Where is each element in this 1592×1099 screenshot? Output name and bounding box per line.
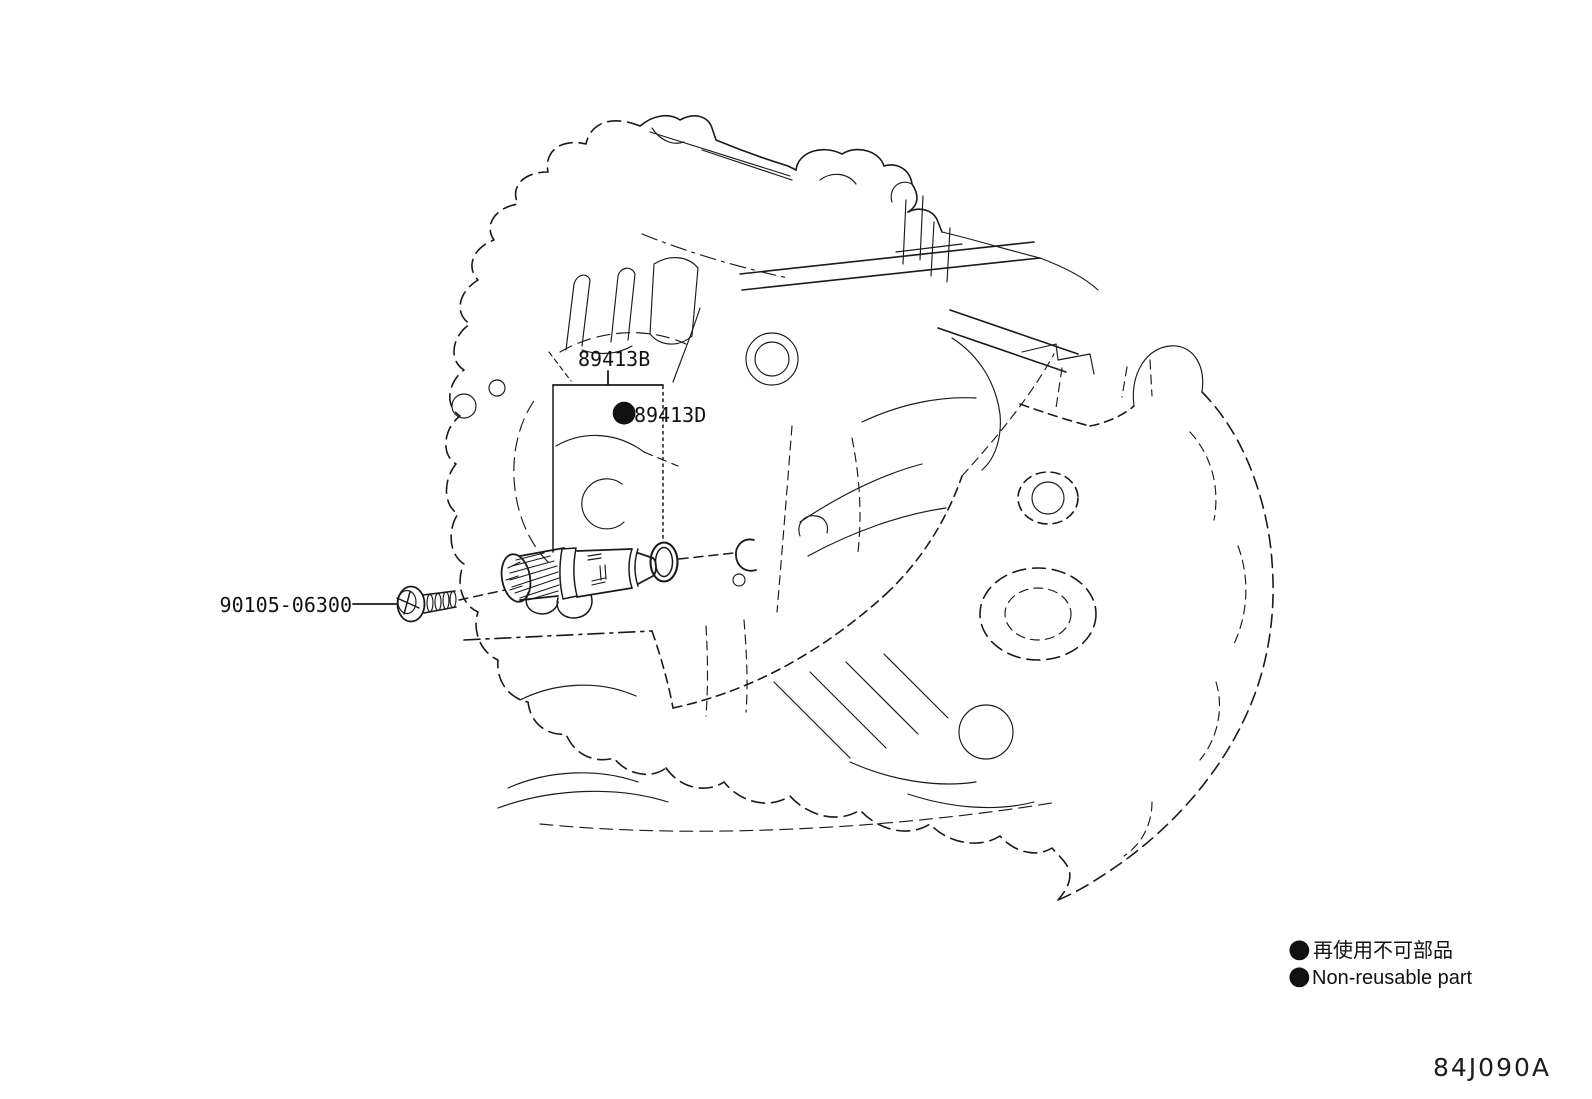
part-label-89413D: 89413D (634, 403, 706, 427)
o-ring-leader-dashed (679, 553, 734, 559)
legend-text-japanese: 再使用不可部品 (1313, 938, 1453, 962)
transmission-housing-outline (446, 116, 1273, 900)
shift-bracket-drawing (642, 132, 1127, 408)
part-label-90105-06300: 90105-06300 (220, 593, 352, 617)
parts-diagram-page: 89413B ● 89413D 90105-06300 ● 再使用不可部品 ● … (0, 0, 1592, 1099)
legend-dot-icon: ● (1288, 961, 1311, 991)
legend: ● 再使用不可部品 ● Non-reusable part (1288, 934, 1473, 991)
part-labels: 89413B ● 89413D 90105-06300 (220, 347, 707, 617)
part-label-89413B: 89413B (578, 347, 650, 371)
legend-dot-icon: ● (1288, 934, 1311, 964)
bolt-drawing (397, 587, 456, 622)
legend-text-english: Non-reusable part (1312, 967, 1473, 989)
transmission-parts-diagram: 89413B ● 89413D 90105-06300 ● 再使用不可部品 ● … (0, 0, 1592, 1099)
figure-code: 84J090A (1433, 1053, 1551, 1082)
speed-sensor-drawing (498, 548, 656, 618)
bolt-leader-dashed (459, 590, 505, 600)
transmission-housing-details (452, 258, 1246, 856)
